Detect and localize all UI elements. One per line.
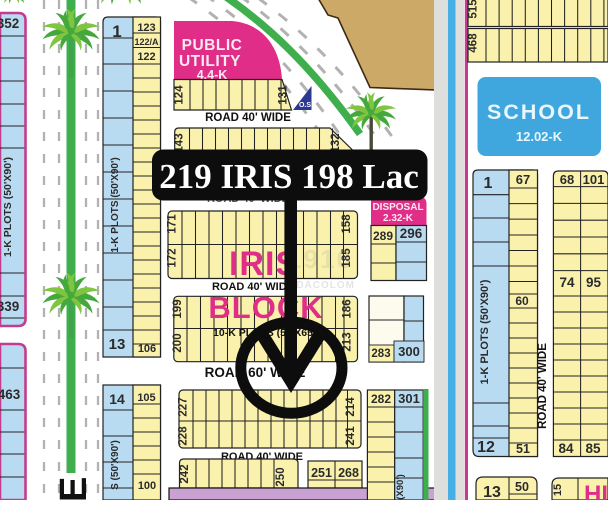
svg-text:DISPOSAL: DISPOSAL [372, 202, 423, 213]
svg-text:468: 468 [468, 33, 480, 53]
svg-text:67: 67 [516, 172, 530, 187]
svg-text:131: 131 [278, 85, 290, 105]
svg-text:124: 124 [174, 85, 186, 105]
svg-text:282: 282 [371, 392, 391, 406]
svg-text:13: 13 [483, 484, 501, 500]
svg-text:S (50'X90'): S (50'X90') [110, 440, 121, 490]
svg-text:68: 68 [560, 172, 574, 187]
svg-text:200: 200 [172, 333, 184, 352]
svg-text:O.S: O.S [299, 102, 311, 109]
svg-text:1-K PLOTS (50'X90'): 1-K PLOTS (50'X90') [110, 157, 121, 252]
svg-text:12: 12 [477, 439, 495, 456]
svg-text:51: 51 [516, 442, 530, 456]
svg-text:300: 300 [398, 344, 420, 359]
svg-text:228: 228 [178, 426, 190, 446]
svg-text:1-K PLOTS (50'X90'): 1-K PLOTS (50'X90') [2, 157, 14, 257]
svg-text:251: 251 [311, 466, 332, 480]
svg-text:186: 186 [342, 299, 354, 318]
svg-text:171: 171 [167, 214, 179, 234]
svg-text:289: 289 [373, 229, 393, 243]
svg-text:199: 199 [172, 299, 184, 318]
svg-text:1-K PLOTS (50'X90'): 1-K PLOTS (50'X90') [479, 279, 491, 384]
svg-text:172: 172 [167, 248, 179, 267]
svg-text:14: 14 [109, 391, 125, 407]
svg-text:122: 122 [137, 51, 155, 63]
svg-text:15: 15 [552, 484, 564, 496]
svg-text:HI: HI [584, 481, 608, 500]
svg-text:1: 1 [484, 175, 493, 192]
svg-text:123: 123 [137, 22, 155, 34]
svg-text:ROAD 40' WIDE: ROAD 40' WIDE [205, 112, 291, 124]
svg-text:2.32-K: 2.32-K [383, 213, 414, 224]
svg-text:105: 105 [137, 392, 155, 404]
svg-text:219 IRIS 198 Lac: 219 IRIS 198 Lac [159, 157, 419, 196]
svg-text:PUBLIC: PUBLIC [182, 37, 243, 54]
svg-text:12.02-K: 12.02-K [516, 129, 563, 144]
svg-text:85: 85 [585, 441, 601, 456]
svg-text:SCHOOL: SCHOOL [487, 100, 591, 124]
svg-text:E: E [53, 477, 95, 500]
svg-text:515: 515 [468, 0, 480, 19]
svg-text:214: 214 [345, 397, 357, 417]
svg-text:100: 100 [138, 480, 156, 492]
svg-text:84: 84 [558, 441, 574, 456]
svg-text:74: 74 [559, 275, 575, 290]
svg-text:283: 283 [371, 348, 390, 360]
svg-text:227: 227 [178, 397, 190, 416]
svg-text:13: 13 [109, 336, 126, 353]
svg-text:352: 352 [0, 16, 19, 31]
svg-text:241: 241 [345, 426, 357, 446]
svg-text:158: 158 [341, 214, 353, 234]
svg-text:122/A: 122/A [134, 37, 159, 47]
svg-text:301: 301 [398, 391, 420, 406]
svg-text:296: 296 [400, 226, 423, 241]
svg-text:250: 250 [275, 467, 287, 486]
svg-text:95: 95 [586, 275, 602, 290]
svg-text:(X90'): (X90') [395, 474, 406, 500]
svg-text:1: 1 [112, 22, 121, 41]
svg-text:ROAD 40' WIDE: ROAD 40' WIDE [537, 343, 549, 429]
svg-text:339: 339 [0, 299, 19, 314]
svg-text:268: 268 [338, 466, 359, 480]
svg-text:106: 106 [138, 343, 156, 355]
svg-text:463: 463 [0, 387, 21, 402]
svg-text:242: 242 [179, 464, 191, 483]
svg-text:50: 50 [515, 480, 529, 494]
svg-text:101: 101 [583, 172, 605, 187]
svg-text:60: 60 [515, 294, 529, 308]
